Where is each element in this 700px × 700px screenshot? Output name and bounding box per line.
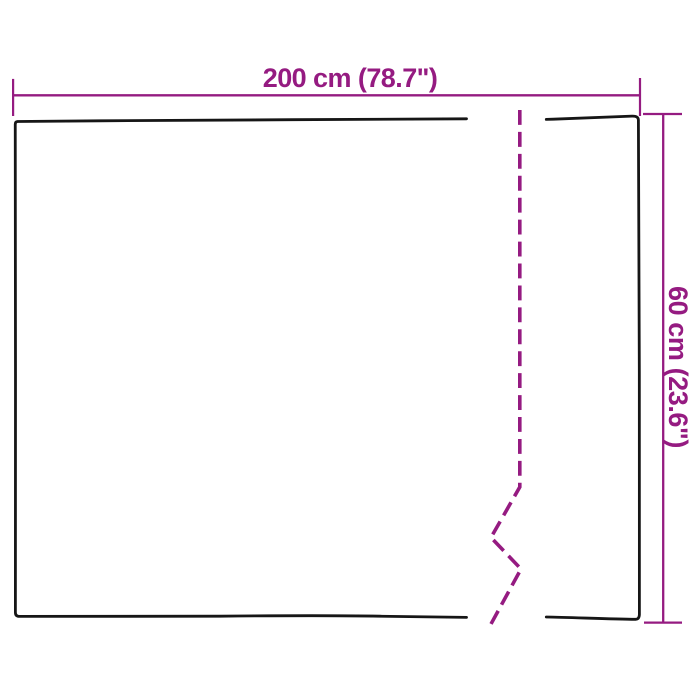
svg-text:200 cm (78.7"): 200 cm (78.7")	[263, 63, 438, 93]
svg-text:60 cm (23.6"): 60 cm (23.6")	[663, 286, 693, 448]
